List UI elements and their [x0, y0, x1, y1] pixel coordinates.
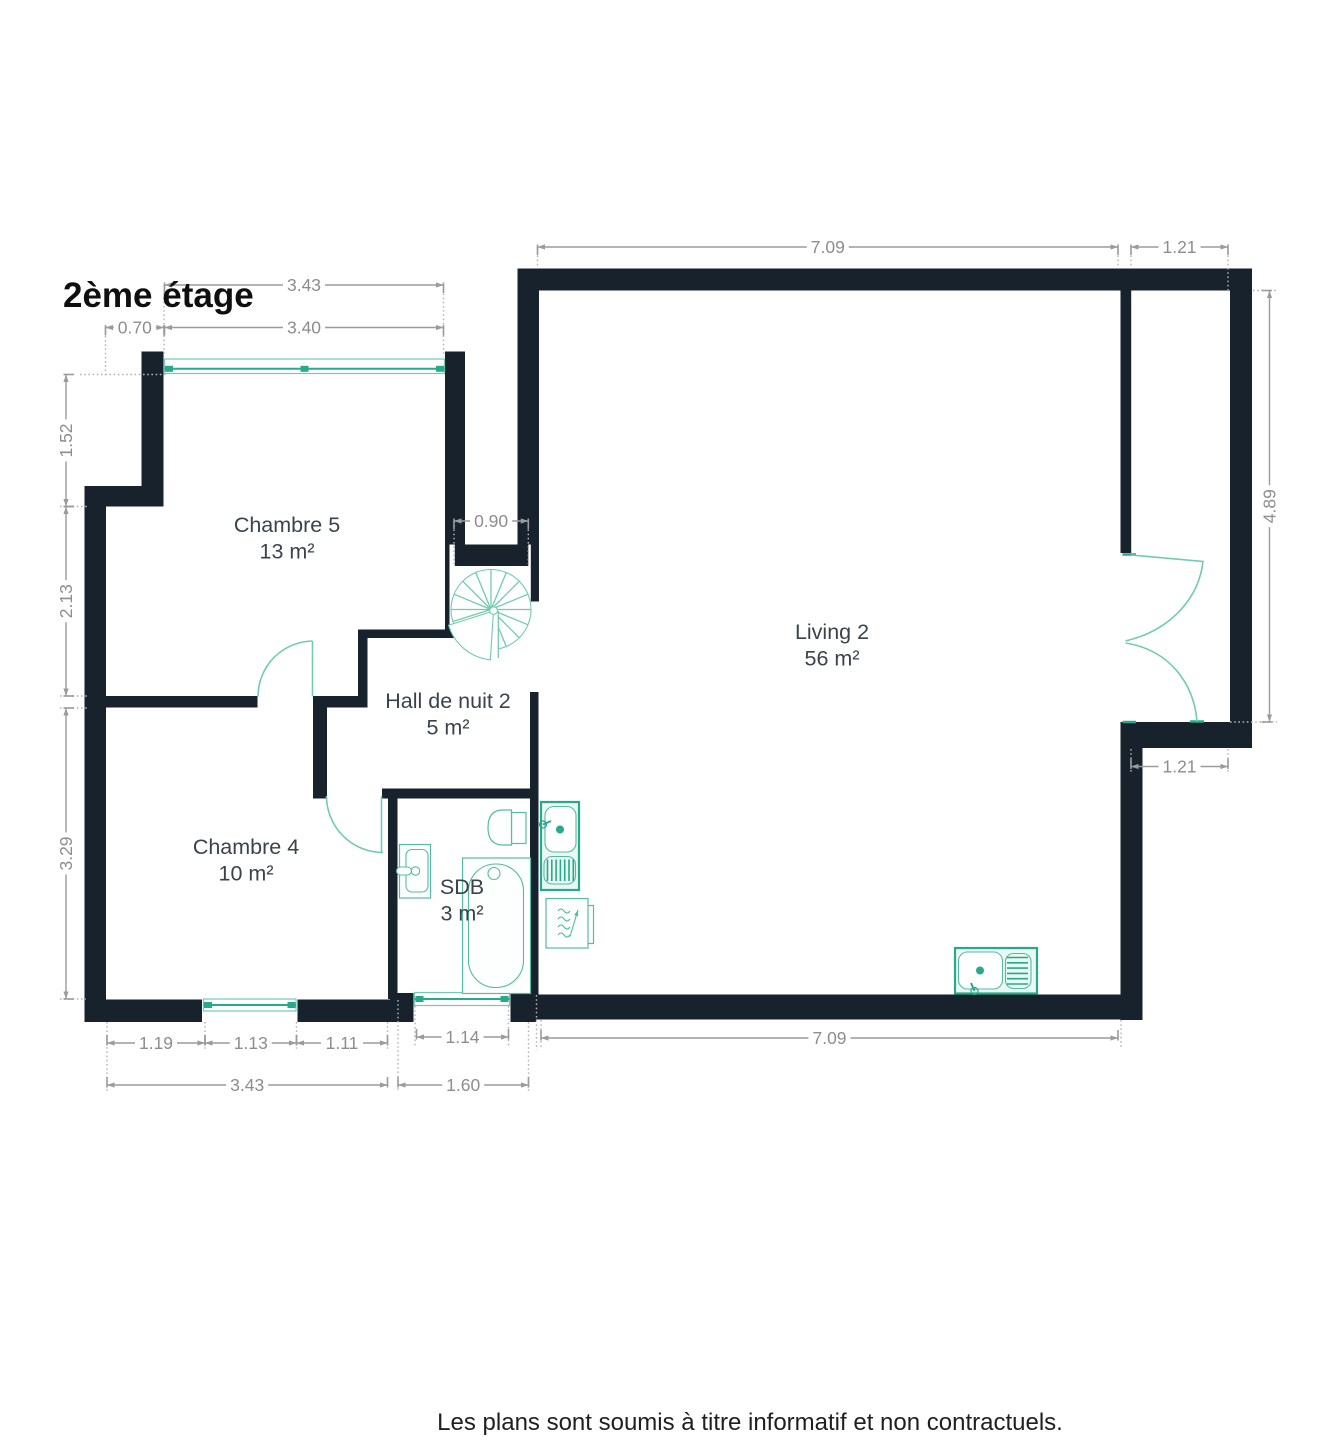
svg-text:Hall de nuit 2: Hall de nuit 2 [385, 689, 511, 713]
svg-text:1.19: 1.19 [139, 1033, 173, 1053]
svg-text:56 m²: 56 m² [805, 647, 860, 671]
svg-text:3.43: 3.43 [230, 1075, 264, 1095]
svg-text:0.90: 0.90 [474, 511, 508, 531]
svg-text:7.09: 7.09 [812, 1028, 846, 1048]
svg-text:3.29: 3.29 [56, 836, 76, 870]
svg-text:13 m²: 13 m² [260, 540, 315, 564]
svg-text:1.21: 1.21 [1162, 757, 1196, 777]
svg-text:Living 2: Living 2 [795, 620, 869, 644]
svg-text:1.21: 1.21 [1162, 237, 1196, 257]
svg-text:1.11: 1.11 [326, 1033, 359, 1053]
svg-text:0.70: 0.70 [118, 318, 152, 338]
svg-text:5 m²: 5 m² [427, 716, 470, 740]
svg-text:3.43: 3.43 [287, 275, 321, 295]
svg-text:2ème étage: 2ème étage [63, 276, 254, 315]
svg-text:2.13: 2.13 [56, 584, 76, 618]
svg-text:Les plans sont soumis à titre: Les plans sont soumis à titre informatif… [437, 1409, 1063, 1436]
svg-text:SDB: SDB [440, 875, 484, 899]
svg-text:7.09: 7.09 [811, 237, 845, 257]
svg-text:3 m²: 3 m² [441, 902, 484, 926]
svg-text:1.52: 1.52 [56, 423, 76, 457]
svg-text:3.40: 3.40 [287, 318, 321, 338]
svg-text:1.60: 1.60 [446, 1075, 480, 1095]
svg-text:1.14: 1.14 [445, 1027, 479, 1047]
svg-text:Chambre 4: Chambre 4 [193, 835, 299, 859]
svg-text:Chambre 5: Chambre 5 [234, 513, 340, 537]
svg-text:1.13: 1.13 [234, 1033, 268, 1053]
svg-text:4.89: 4.89 [1260, 489, 1280, 523]
svg-text:10 m²: 10 m² [219, 862, 274, 886]
